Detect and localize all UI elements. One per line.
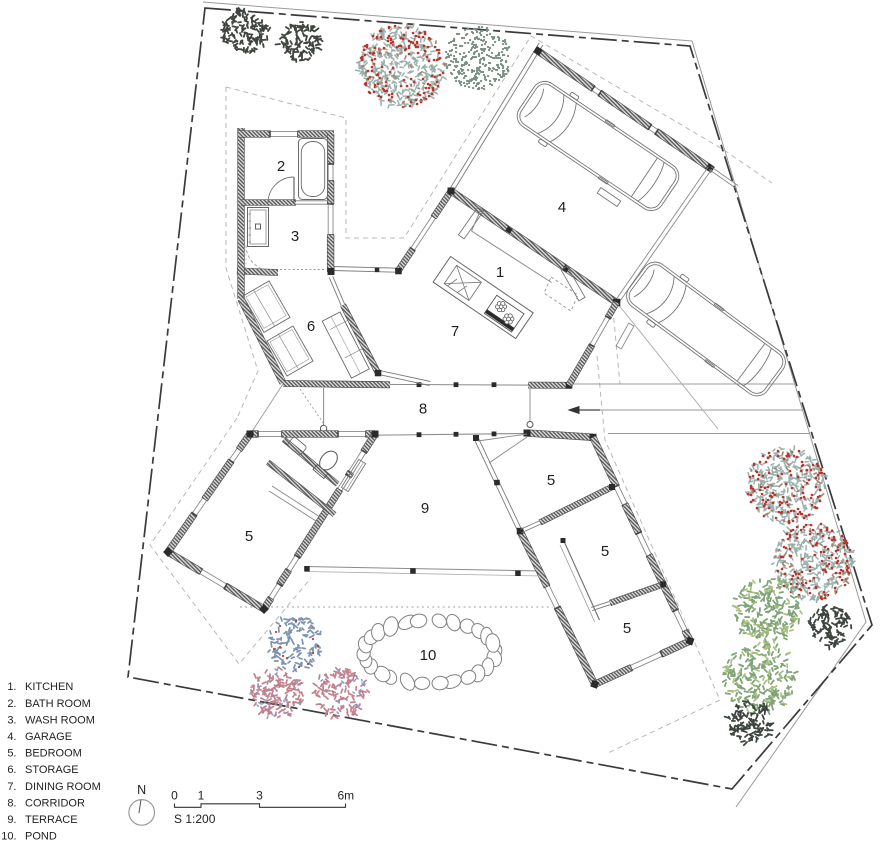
svg-text:2: 2 <box>277 158 285 175</box>
svg-text:4.: 4. <box>7 731 16 743</box>
svg-text:WASH ROOM: WASH ROOM <box>25 714 95 726</box>
svg-text:5: 5 <box>547 472 555 489</box>
svg-text:5: 5 <box>245 528 253 545</box>
svg-text:6.: 6. <box>7 764 16 776</box>
svg-text:6m: 6m <box>338 788 355 802</box>
svg-text:STORAGE: STORAGE <box>25 764 79 776</box>
svg-text:5.: 5. <box>7 748 16 760</box>
svg-text:N: N <box>137 783 146 797</box>
svg-text:1: 1 <box>496 264 504 281</box>
svg-text:8.: 8. <box>7 797 16 809</box>
svg-text:S 1:200: S 1:200 <box>174 812 216 826</box>
svg-text:6: 6 <box>307 318 315 335</box>
svg-text:BEDROOM: BEDROOM <box>25 748 82 760</box>
svg-text:3: 3 <box>256 788 263 802</box>
svg-text:2.: 2. <box>7 698 16 710</box>
svg-text:7: 7 <box>451 323 459 340</box>
svg-text:0: 0 <box>171 788 178 802</box>
svg-text:1: 1 <box>198 788 205 802</box>
svg-text:KITCHEN: KITCHEN <box>25 681 73 693</box>
svg-text:4: 4 <box>558 199 566 216</box>
svg-text:9: 9 <box>421 500 429 517</box>
svg-text:8: 8 <box>419 401 427 418</box>
svg-text:CORRIDOR: CORRIDOR <box>25 797 85 809</box>
svg-text:TERRACE: TERRACE <box>25 814 78 826</box>
svg-text:3.: 3. <box>7 714 16 726</box>
svg-text:7.: 7. <box>7 781 16 793</box>
svg-text:10: 10 <box>420 647 437 664</box>
svg-text:10.: 10. <box>1 831 16 843</box>
svg-text:GARAGE: GARAGE <box>25 731 72 743</box>
svg-text:5: 5 <box>601 543 609 560</box>
svg-text:9.: 9. <box>7 814 16 826</box>
svg-text:BATH ROOM: BATH ROOM <box>25 698 91 710</box>
svg-text:5: 5 <box>623 620 631 637</box>
svg-text:1.: 1. <box>7 681 16 693</box>
svg-text:POND: POND <box>25 831 57 843</box>
svg-text:DINING ROOM: DINING ROOM <box>25 781 101 793</box>
svg-text:3: 3 <box>291 228 299 245</box>
